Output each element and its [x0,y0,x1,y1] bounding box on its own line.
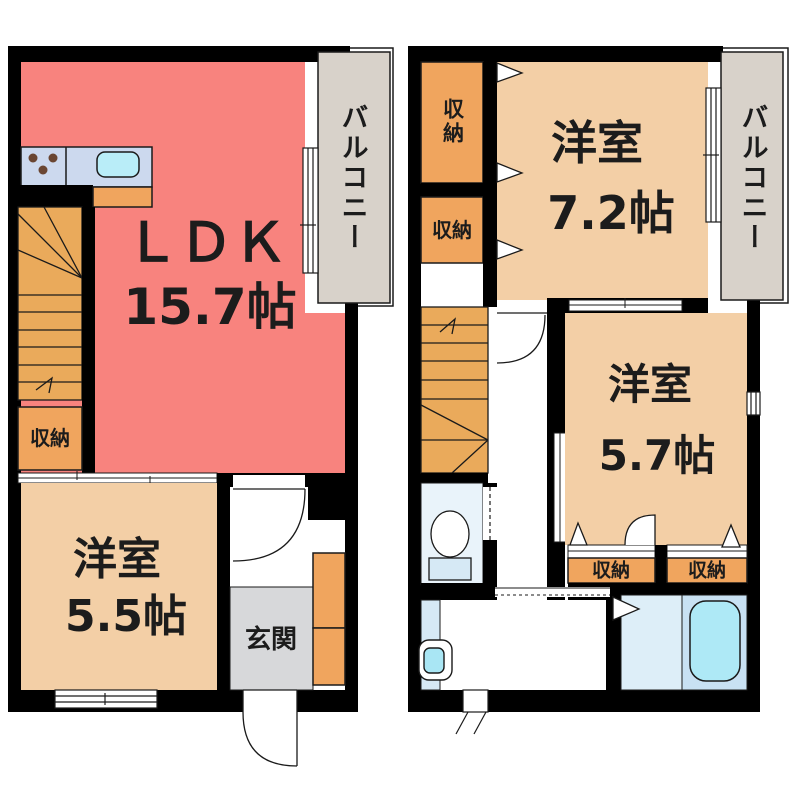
toilet-icon [429,511,471,580]
wall-washroom-top [421,583,497,600]
sliding-door-washroom [495,587,610,597]
entrance-door [243,690,297,766]
closet-1f-label: 収納 [30,428,70,448]
kitchen-sink-icon [97,152,139,177]
shoe-cabinet-upper [313,553,345,628]
wall-stairs-1f [82,207,95,473]
wall-bedroom-hall-1f [217,473,230,690]
bedroom-5_5-label: 洋室 [73,538,161,582]
bedroom-5_7-area-label: 5.7帖 [599,435,715,477]
closet-2f-right-label: 収納 [688,562,726,581]
window-bedroom-balcony [703,88,721,222]
balcony-1f-label: バルコニー [339,103,366,253]
room-bedroom-5_7 [565,313,747,545]
room-bedroom-5_5 [21,483,217,690]
bedroom-5_5-area-label: 5.5帖 [65,595,187,639]
door-toilet [483,487,497,540]
sliding-partition-bedrooms [569,298,682,311]
balcony-2f-label: バルコニー [739,103,766,253]
floor-plan-image: バルコニー ＬＤＫ 15.7帖 収納 洋室 5.5帖 玄関 収納 収納 洋室 7… [0,0,800,800]
staircase-2f [421,307,488,473]
wall-stairs-2f [421,473,488,483]
window-bedroom-5_7 [747,392,760,415]
window-bedroom-1f [55,690,157,708]
shoe-cabinet-lower [313,628,345,685]
room-bedroom-7_2 [497,62,708,300]
sliding-door-bedroom-5_7 [554,433,566,542]
floor1-plan [8,46,393,766]
kitchen-counter [21,147,152,187]
staircase-1f [18,207,82,400]
bedroom-5_7-label: 洋室 [608,364,692,406]
wall-column-1f [308,473,347,520]
wall-closet-divider [421,183,483,197]
closet-2f-mid-label: 収納 [432,220,472,240]
kitchen-cabinet [93,187,152,207]
closet-2f-left-label: 収納 [592,562,630,581]
wall-closet-column [483,62,497,307]
ldk-area-label: 15.7帖 [123,282,296,332]
entrance-label: 玄関 [245,627,297,653]
washbasin-icon [419,640,452,680]
window-ldk-balcony [300,148,318,273]
bedroom-7_2-area-label: 7.2帖 [547,190,675,236]
ldk-label: ＬＤＫ [125,216,287,270]
sliding-door-ldk-bedroom [18,471,217,485]
wall-kitchen-side [17,185,93,207]
closet-2f-top-label: 収納 [442,98,463,146]
bedroom-7_2-label: 洋室 [551,120,643,166]
bathtub-icon [690,601,740,681]
